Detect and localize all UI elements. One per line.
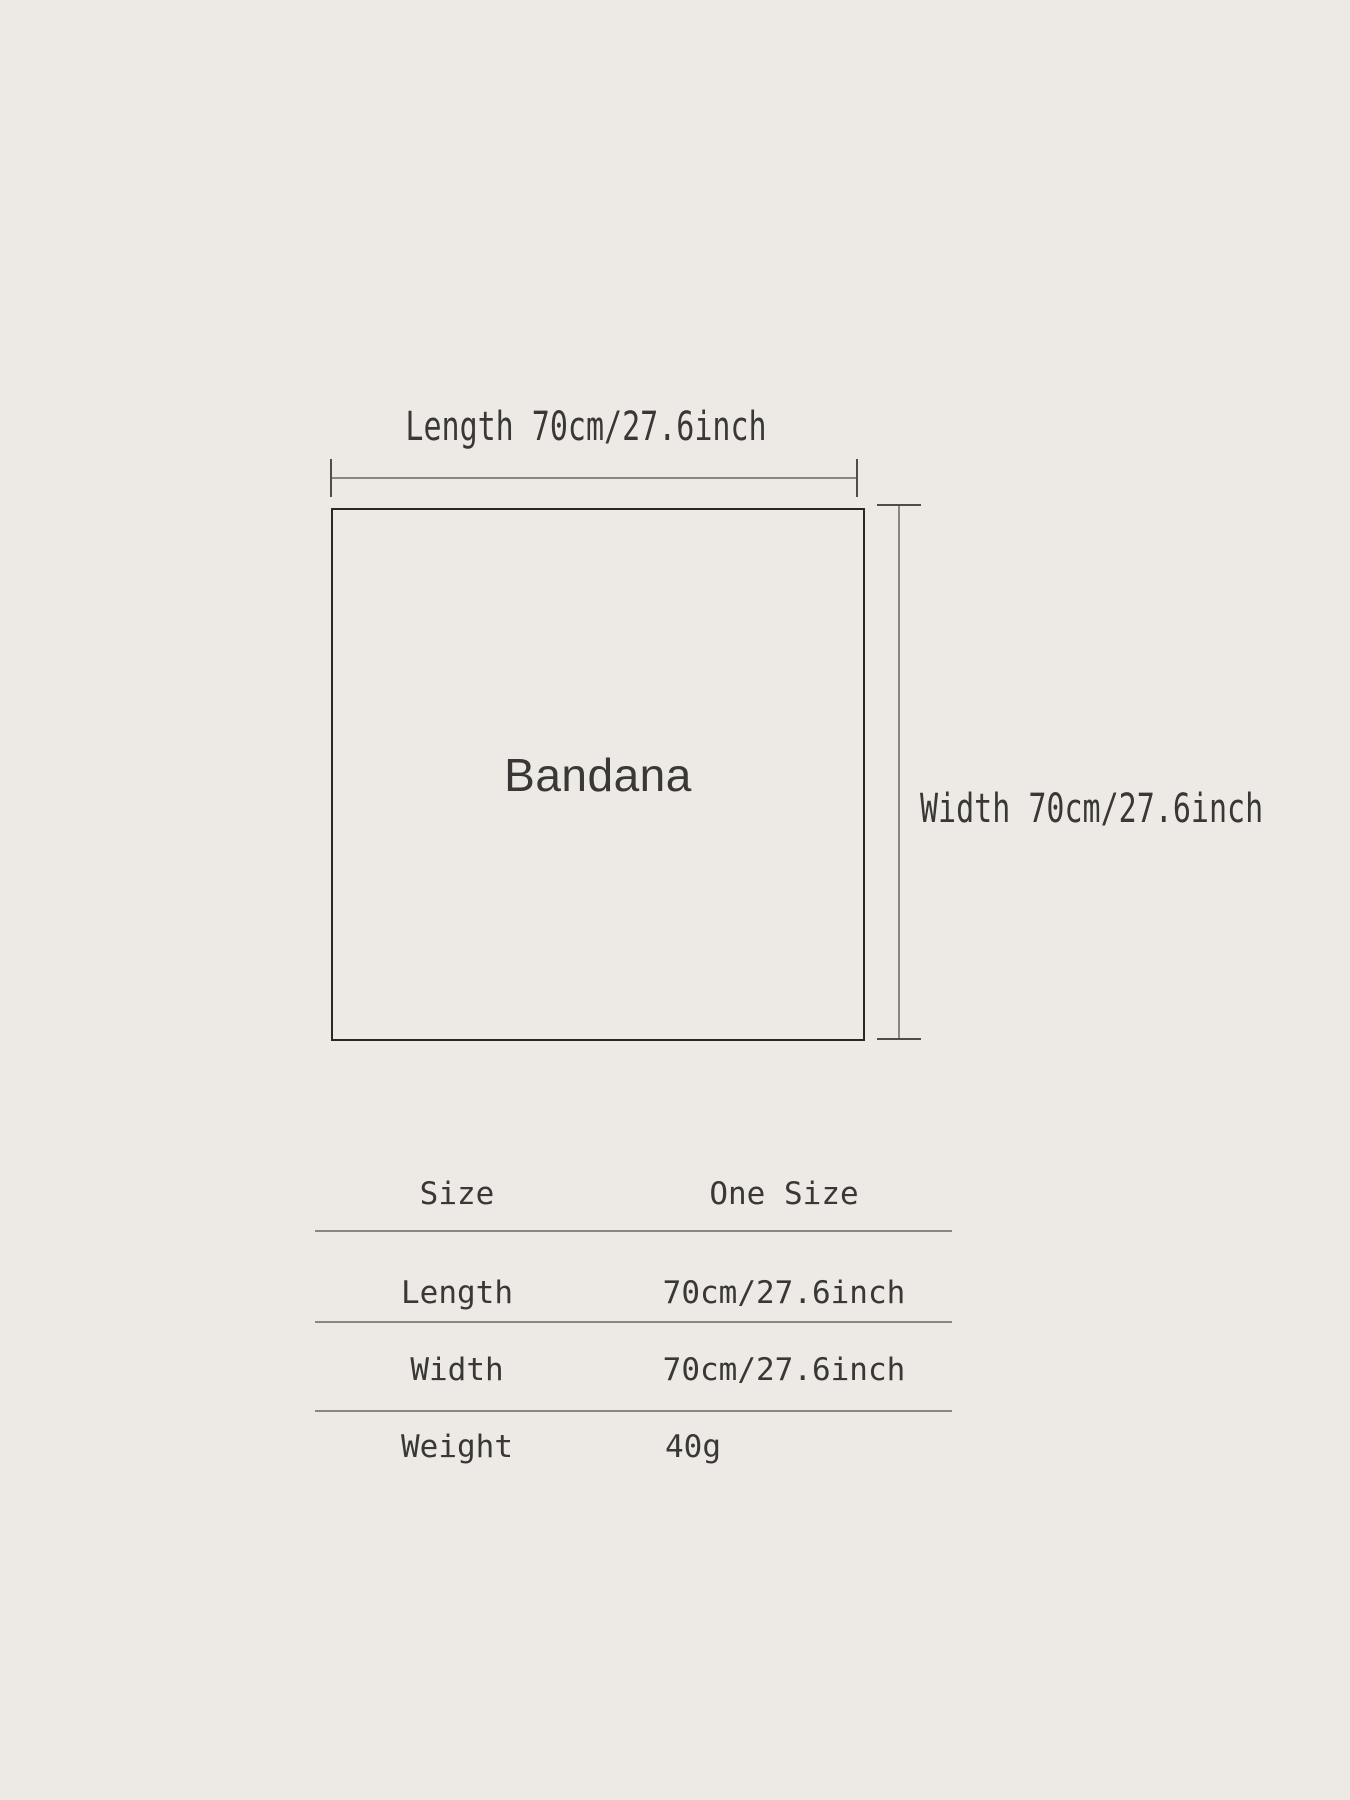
width-row-value: 70cm/27.6inch bbox=[614, 1350, 954, 1390]
width-measure-line bbox=[898, 504, 900, 1040]
size-chart-image: Length 70cm/27.6inch Bandana Width 70cm/… bbox=[0, 0, 1350, 1800]
table-divider bbox=[315, 1230, 952, 1232]
table-row-weight: Weight 40g bbox=[0, 1427, 1350, 1467]
table-divider bbox=[315, 1321, 952, 1323]
size-header-cell: Size bbox=[317, 1174, 597, 1214]
weight-row-value: 40g bbox=[614, 1427, 954, 1467]
width-row-label: Width bbox=[317, 1350, 597, 1390]
length-measure-label: Length 70cm/27.6inch bbox=[388, 404, 784, 450]
table-divider bbox=[315, 1410, 952, 1412]
table-row-length: Length 70cm/27.6inch bbox=[0, 1273, 1350, 1313]
length-measure-tick-right bbox=[856, 459, 858, 497]
length-row-value: 70cm/27.6inch bbox=[614, 1273, 954, 1313]
size-table-header-row: Size One Size bbox=[0, 1174, 1350, 1214]
product-name-label: Bandana bbox=[504, 748, 692, 802]
weight-row-label: Weight bbox=[317, 1427, 597, 1467]
length-measure-line bbox=[330, 477, 858, 479]
length-row-label: Length bbox=[317, 1273, 597, 1313]
length-measure-tick-left bbox=[330, 459, 332, 497]
table-row-width: Width 70cm/27.6inch bbox=[0, 1350, 1350, 1390]
product-outline: Bandana bbox=[331, 508, 865, 1041]
width-measure-label: Width 70cm/27.6inch bbox=[920, 786, 1263, 832]
one-size-header-cell: One Size bbox=[614, 1174, 954, 1214]
width-measure-tick-top bbox=[877, 504, 921, 506]
width-measure-tick-bottom bbox=[877, 1038, 921, 1040]
